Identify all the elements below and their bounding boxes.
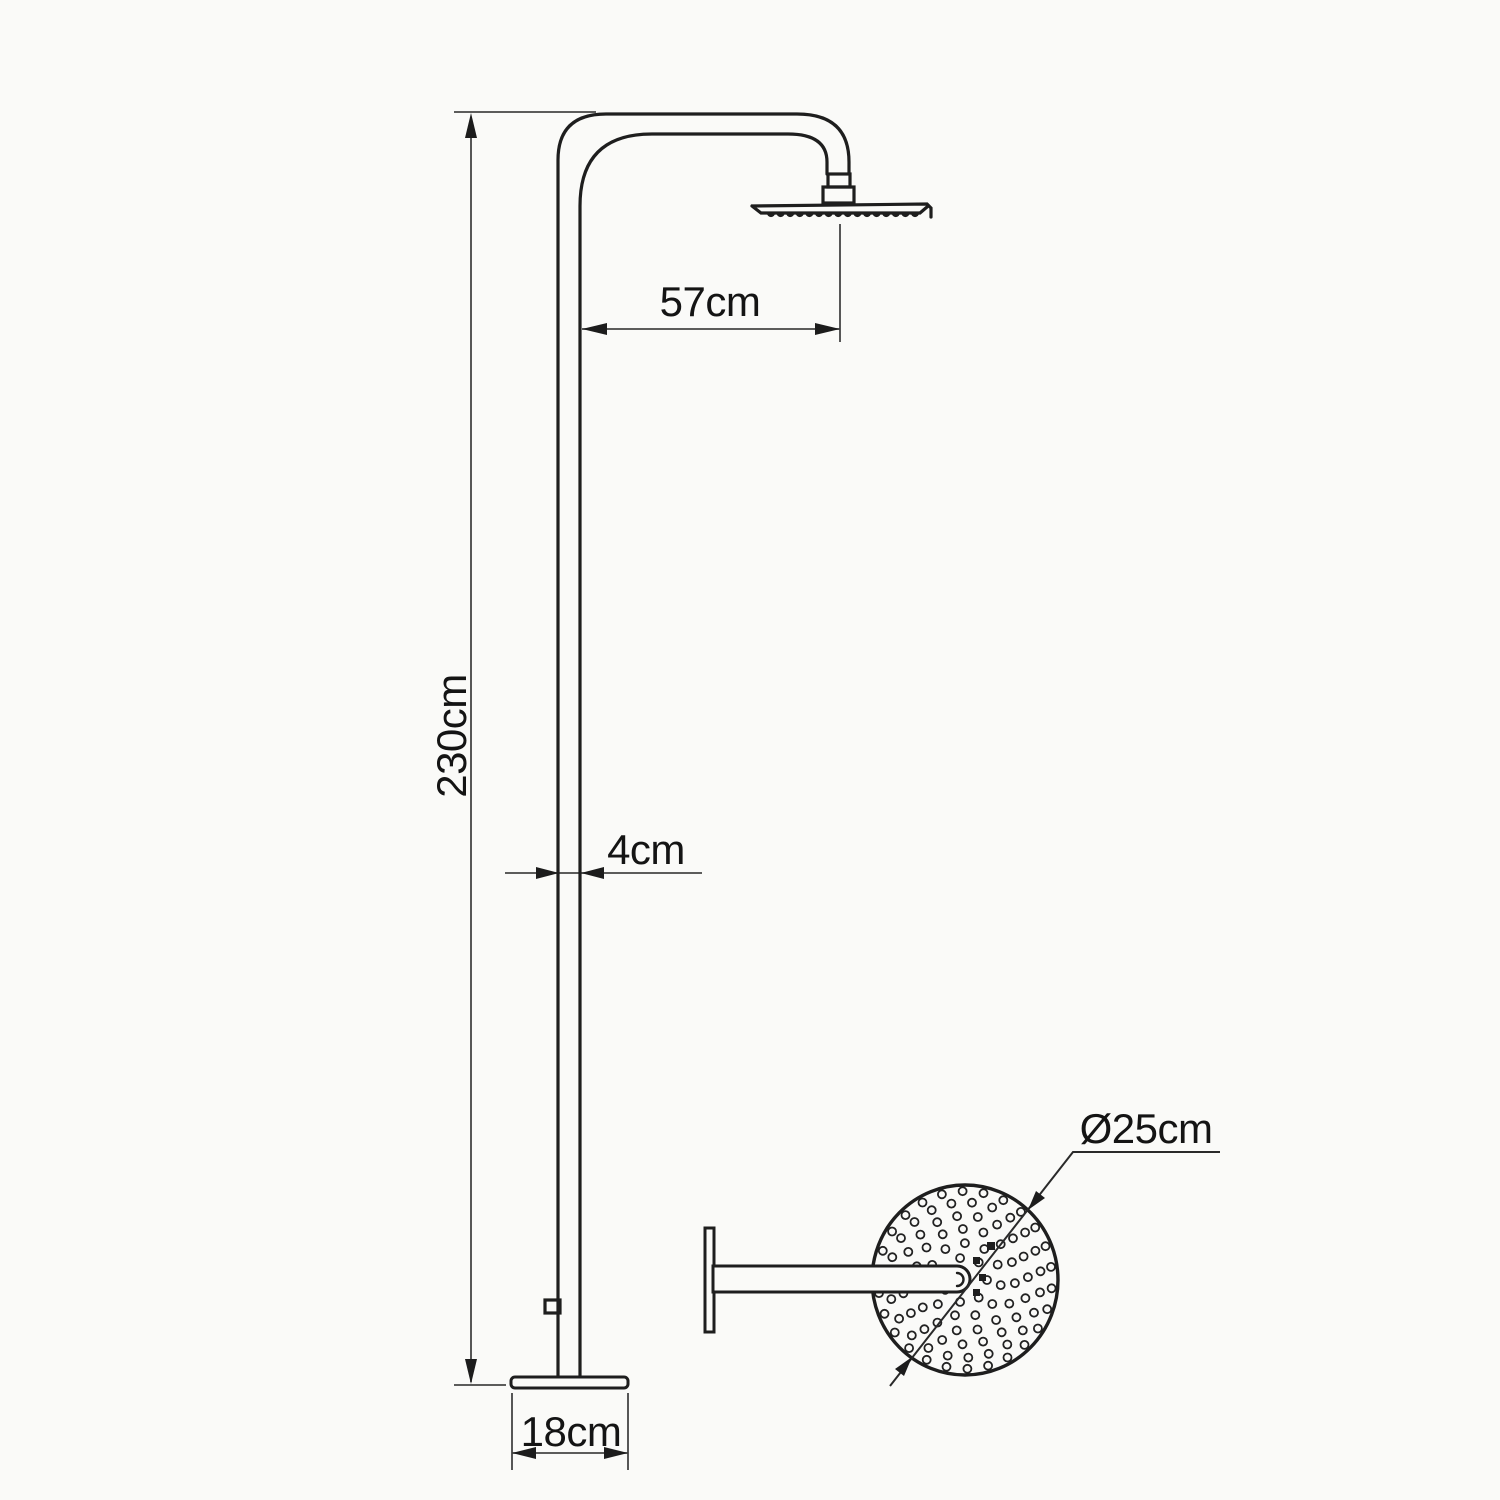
dimension-label-base-width: 18cm <box>521 1408 622 1455</box>
dimension-label-head-diameter: Ø25cm <box>1080 1105 1213 1152</box>
dimension-pipe-width: 4cm <box>505 826 702 879</box>
shower-arm-top-view <box>713 1266 970 1292</box>
arrow-left-icon <box>582 323 607 335</box>
arrow-up-right-icon <box>895 1357 912 1376</box>
connector-nub <box>979 1274 986 1281</box>
base-plate <box>511 1377 628 1388</box>
connector-nub <box>973 1257 980 1264</box>
dimension-column-height: 230cm <box>428 112 596 1385</box>
top-view-shower-head <box>705 1185 1058 1375</box>
arrow-right-icon <box>815 323 840 335</box>
arrow-right-icon <box>536 867 559 879</box>
arrow-left-icon <box>581 867 604 879</box>
dimension-label-column-height: 230cm <box>428 674 475 798</box>
arrow-down-left-icon <box>1028 1191 1045 1210</box>
dimension-label-arm-reach: 57cm <box>660 278 761 325</box>
drawing-canvas: 230cm 57cm 4cm 18cm <box>0 0 1500 1500</box>
head-connector-collar-large <box>823 187 854 203</box>
dimension-label-pipe-width: 4cm <box>607 826 685 873</box>
dimension-arm-reach: 57cm <box>582 224 840 342</box>
head-connector-collar-small <box>828 174 850 187</box>
connector-nub <box>973 1289 980 1296</box>
arrow-up-icon <box>465 113 477 138</box>
leader-node-square <box>987 1242 995 1250</box>
technical-drawing: 230cm 57cm 4cm 18cm <box>0 0 1500 1500</box>
dimension-base-width: 18cm <box>512 1393 628 1470</box>
arrow-down-icon <box>465 1359 477 1384</box>
